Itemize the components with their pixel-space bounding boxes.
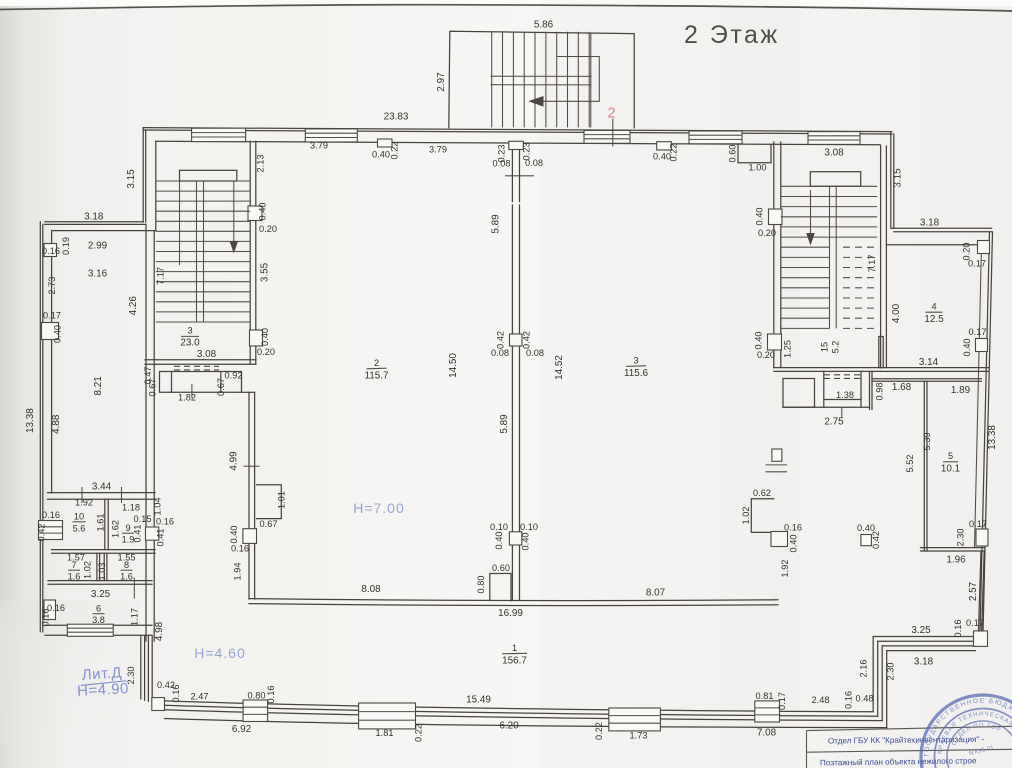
svg-text:0.17: 0.17 [969, 519, 987, 529]
svg-text:4.98: 4.98 [154, 621, 165, 641]
svg-text:3.55: 3.55 [260, 262, 271, 282]
svg-text:7.17: 7.17 [867, 255, 877, 273]
svg-text:0.92: 0.92 [225, 371, 243, 381]
svg-text:1.02: 1.02 [83, 561, 93, 579]
svg-text:2.97: 2.97 [436, 72, 447, 91]
svg-text:1.01: 1.01 [277, 491, 287, 509]
svg-text:12.5: 12.5 [924, 314, 944, 325]
svg-text:2.30: 2.30 [886, 663, 896, 681]
svg-text:0.40: 0.40 [229, 526, 239, 544]
svg-text:0.42: 0.42 [496, 331, 506, 349]
svg-text:8.21: 8.21 [93, 376, 104, 396]
svg-text:0.41: 0.41 [156, 529, 166, 547]
svg-text:4.00: 4.00 [891, 303, 902, 323]
svg-text:5.86: 5.86 [534, 20, 554, 31]
svg-text:1.17: 1.17 [130, 608, 140, 626]
svg-text:5.39: 5.39 [922, 433, 932, 451]
svg-text:0.16: 0.16 [171, 685, 181, 703]
svg-text:0.42: 0.42 [871, 531, 881, 549]
svg-text:1.62: 1.62 [111, 520, 121, 538]
svg-text:15: 15 [820, 342, 830, 352]
svg-text:Н=4.90: Н=4.90 [77, 680, 130, 700]
svg-text:1.68: 1.68 [892, 382, 912, 393]
svg-text:0.08: 0.08 [493, 159, 511, 169]
svg-text:0.40: 0.40 [260, 328, 270, 346]
svg-text:1.25: 1.25 [783, 340, 793, 358]
svg-text:0.19: 0.19 [61, 237, 71, 255]
svg-text:0.40: 0.40 [754, 332, 764, 350]
svg-text:115.7: 115.7 [365, 371, 389, 382]
svg-text:0.20: 0.20 [757, 350, 775, 360]
svg-text:0.22: 0.22 [594, 722, 604, 740]
svg-text:16.99: 16.99 [498, 608, 523, 619]
svg-text:0.40: 0.40 [755, 208, 765, 226]
svg-text:0.41: 0.41 [133, 525, 143, 543]
svg-text:0.20: 0.20 [257, 347, 275, 357]
svg-text:3.16: 3.16 [88, 268, 108, 279]
svg-text:5.6: 5.6 [73, 524, 86, 534]
svg-text:0.22: 0.22 [669, 144, 679, 162]
svg-text:7.17: 7.17 [156, 267, 166, 285]
svg-text:0.67: 0.67 [148, 379, 158, 397]
svg-text:5.52: 5.52 [905, 455, 915, 473]
svg-text:0.60: 0.60 [492, 563, 510, 573]
svg-text:3.15: 3.15 [126, 169, 137, 189]
svg-text:8.07: 8.07 [646, 587, 665, 598]
svg-text:0.40: 0.40 [521, 533, 531, 551]
svg-text:0.40: 0.40 [962, 339, 972, 357]
svg-text:3.18: 3.18 [920, 217, 940, 228]
svg-text:3.14: 3.14 [919, 357, 939, 368]
svg-text:0.16: 0.16 [42, 510, 60, 520]
svg-text:23.0: 23.0 [180, 338, 200, 349]
svg-text:0.20: 0.20 [758, 228, 776, 238]
svg-text:6: 6 [96, 604, 101, 614]
svg-text:1.04: 1.04 [153, 498, 163, 516]
svg-text:0.81: 0.81 [756, 691, 774, 701]
svg-text:0.16: 0.16 [42, 246, 60, 256]
svg-text:0.17: 0.17 [777, 692, 787, 710]
svg-text:4.26: 4.26 [128, 296, 139, 316]
svg-text:10.1: 10.1 [941, 464, 961, 475]
svg-text:3.15: 3.15 [893, 168, 904, 188]
svg-text:1.61: 1.61 [96, 514, 106, 532]
svg-text:2.48: 2.48 [812, 695, 830, 705]
svg-text:3.18: 3.18 [914, 657, 934, 668]
svg-text:1.96: 1.96 [946, 555, 966, 566]
svg-text:15.49: 15.49 [466, 695, 491, 706]
svg-text:8.08: 8.08 [361, 584, 381, 595]
svg-text:5.2: 5.2 [831, 341, 841, 354]
svg-text:1.55: 1.55 [118, 553, 136, 563]
svg-text:3: 3 [187, 326, 192, 336]
svg-text:2: 2 [607, 106, 615, 122]
svg-text:14.50: 14.50 [448, 353, 459, 378]
svg-text:1.03: 1.03 [97, 563, 107, 581]
svg-text:10: 10 [74, 512, 84, 522]
svg-text:6.20: 6.20 [499, 721, 519, 732]
svg-text:2.75: 2.75 [824, 417, 844, 428]
svg-text:0.17: 0.17 [968, 259, 986, 269]
svg-text:Н=4.60: Н=4.60 [194, 645, 246, 661]
svg-text:0.16: 0.16 [41, 609, 51, 627]
svg-text:2.47: 2.47 [191, 692, 209, 702]
svg-text:1.6: 1.6 [68, 572, 81, 582]
svg-text:13.38: 13.38 [987, 425, 998, 450]
svg-text:2 Этаж: 2 Этаж [684, 21, 780, 49]
svg-text:1.92: 1.92 [75, 498, 93, 508]
svg-text:1.73: 1.73 [630, 731, 648, 741]
svg-text:0.42: 0.42 [522, 331, 532, 349]
svg-text:0.40: 0.40 [372, 150, 390, 160]
svg-text:1.02: 1.02 [741, 507, 751, 525]
svg-text:3.25: 3.25 [91, 589, 111, 600]
svg-text:0.16: 0.16 [784, 523, 802, 533]
svg-text:2.99: 2.99 [88, 240, 108, 251]
svg-text:0.62: 0.62 [753, 488, 771, 498]
svg-text:4.99: 4.99 [229, 451, 240, 471]
svg-text:2: 2 [374, 358, 379, 368]
svg-text:5.89: 5.89 [491, 214, 502, 234]
svg-text:115.6: 115.6 [624, 368, 648, 379]
svg-text:1.00: 1.00 [749, 163, 767, 173]
svg-text:3.08: 3.08 [824, 148, 844, 159]
svg-text:3.79: 3.79 [429, 145, 447, 155]
svg-text:1.6: 1.6 [120, 572, 133, 582]
svg-text:0.98: 0.98 [875, 383, 885, 401]
svg-text:1.92: 1.92 [780, 560, 790, 578]
svg-text:0.16: 0.16 [844, 691, 854, 709]
svg-text:7.08: 7.08 [757, 728, 777, 739]
svg-text:2.57: 2.57 [968, 582, 979, 601]
svg-text:156.7: 156.7 [502, 656, 527, 667]
svg-text:5: 5 [948, 451, 953, 461]
svg-text:0.80: 0.80 [476, 576, 486, 594]
svg-text:3.8: 3.8 [92, 615, 105, 625]
svg-text:0.42: 0.42 [37, 524, 47, 542]
svg-text:2.73: 2.73 [47, 277, 57, 295]
svg-text:0.80: 0.80 [248, 691, 266, 701]
svg-text:5.89: 5.89 [499, 414, 510, 434]
svg-text:4: 4 [931, 302, 936, 312]
svg-text:3.25: 3.25 [911, 625, 931, 636]
svg-text:4.88: 4.88 [51, 414, 62, 434]
svg-text:0.17: 0.17 [43, 311, 61, 321]
svg-text:1.89: 1.89 [951, 385, 971, 396]
svg-text:0.16: 0.16 [231, 544, 249, 554]
svg-text:0.16: 0.16 [953, 620, 963, 638]
svg-text:0.08: 0.08 [491, 348, 509, 358]
svg-text:3.44: 3.44 [92, 481, 112, 492]
svg-text:9: 9 [125, 523, 130, 533]
svg-text:0.08: 0.08 [525, 158, 543, 168]
svg-text:0.10: 0.10 [520, 522, 538, 532]
svg-text:2.30: 2.30 [956, 529, 966, 547]
svg-text:0.40: 0.40 [494, 532, 504, 550]
svg-text:2.16: 2.16 [859, 660, 869, 678]
svg-text:3: 3 [633, 356, 638, 366]
svg-text:0.08: 0.08 [526, 348, 544, 358]
svg-text:1.82: 1.82 [178, 393, 196, 403]
svg-text:3.79: 3.79 [310, 141, 328, 151]
svg-text:13.38: 13.38 [25, 408, 36, 433]
svg-text:6.92: 6.92 [232, 724, 251, 735]
svg-text:0.40: 0.40 [53, 325, 63, 343]
svg-text:0.22: 0.22 [414, 724, 424, 742]
svg-text:0.67: 0.67 [216, 378, 226, 396]
svg-text:1.57: 1.57 [67, 553, 85, 563]
svg-text:14.52: 14.52 [554, 355, 565, 380]
svg-text:0.10: 0.10 [490, 522, 508, 532]
svg-text:1.94: 1.94 [233, 563, 243, 581]
svg-text:0.16: 0.16 [156, 517, 174, 527]
svg-text:3.08: 3.08 [197, 349, 217, 360]
svg-text:Н=7.00: Н=7.00 [353, 500, 405, 516]
svg-text:0.16: 0.16 [266, 686, 276, 704]
svg-text:1: 1 [512, 643, 517, 653]
svg-text:0.40: 0.40 [258, 203, 268, 221]
svg-text:1.38: 1.38 [836, 390, 854, 400]
svg-text:0.20: 0.20 [259, 224, 277, 234]
svg-text:2.13: 2.13 [256, 155, 266, 173]
svg-text:1.81: 1.81 [376, 728, 394, 738]
svg-text:0.40: 0.40 [789, 535, 799, 553]
svg-text:0.48: 0.48 [856, 694, 874, 704]
svg-text:0.67: 0.67 [260, 519, 278, 529]
svg-text:0.15: 0.15 [134, 514, 152, 524]
svg-text:3.18: 3.18 [84, 211, 104, 222]
svg-text:23.83: 23.83 [384, 112, 409, 123]
svg-text:1.18: 1.18 [122, 503, 140, 513]
svg-text:0.17: 0.17 [969, 327, 987, 337]
svg-text:0.60: 0.60 [728, 145, 738, 163]
